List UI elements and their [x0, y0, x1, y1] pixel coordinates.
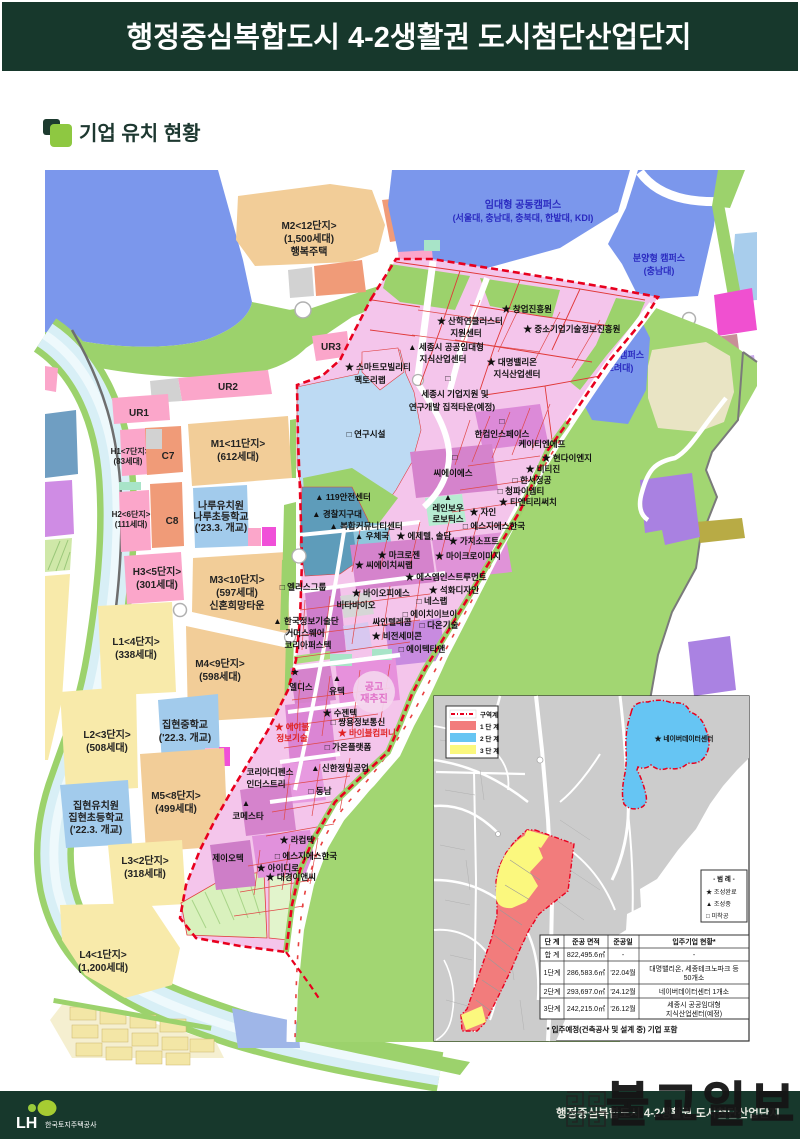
svg-text:★ 석화디자인: ★ 석화디자인 [429, 585, 479, 595]
svg-text:(508세대): (508세대) [86, 741, 128, 754]
svg-text:제이오텍: 제이오텍 [212, 853, 243, 863]
svg-text:케이티엔에프: 케이티엔에프 [519, 439, 566, 449]
svg-text:★ 창업진흥원: ★ 창업진흥원 [502, 304, 552, 314]
svg-text:행정중심복합도시 4-2생활권 도시첨단산업단지: 행정중심복합도시 4-2생활권 도시첨단산업단지 [127, 21, 692, 54]
svg-text:H1<7단지>: H1<7단지> [111, 446, 150, 456]
svg-text:50개소: 50개소 [684, 973, 705, 982]
svg-text:(301세대): (301세대) [136, 578, 178, 591]
svg-text:□ 에스지에스한국: □ 에스지에스한국 [275, 851, 337, 861]
svg-text:재추진: 재추진 [360, 692, 388, 705]
svg-text:세종시 공공임대형: 세종시 공공임대형 [667, 1000, 720, 1009]
svg-text:기업 유치 현황: 기업 유치 현황 [79, 122, 201, 145]
svg-text:(499세대): (499세대) [155, 802, 197, 815]
svg-text:▲: ▲ [444, 492, 452, 502]
svg-text:L2<3단지>: L2<3단지> [83, 728, 130, 741]
svg-text:□: □ [452, 452, 457, 462]
svg-text:거머스웨어: 거머스웨어 [285, 628, 324, 638]
svg-text:M4<9단지>: M4<9단지> [195, 657, 245, 670]
svg-text:★ 에스엠인스트루먼트: ★ 에스엠인스트루먼트 [405, 572, 486, 582]
svg-text:★ 비전세미콘: ★ 비전세미콘 [372, 631, 422, 641]
svg-text:L3<2단지>: L3<2단지> [121, 854, 168, 867]
svg-text:'22.04월: '22.04월 [610, 968, 635, 977]
svg-text:▲ 조성중: ▲ 조성중 [706, 900, 731, 908]
svg-text:□ 엘리스그룹: □ 엘리스그룹 [280, 582, 327, 592]
svg-text:□ 다온기술: □ 다온기술 [420, 620, 459, 630]
svg-text:★ 대명밸리온: ★ 대명밸리온 [487, 357, 537, 367]
svg-text:★ 바이오피에스: ★ 바이오피에스 [352, 588, 410, 598]
svg-text:집현유치원: 집현유치원 [73, 799, 119, 812]
svg-text:1단계: 1단계 [544, 968, 561, 977]
svg-text:(318세대): (318세대) [124, 867, 166, 880]
svg-text:□ 동남: □ 동남 [308, 786, 331, 796]
svg-text:▲ 신한정밀공업: ▲ 신한정밀공업 [311, 763, 369, 773]
svg-text:코메스타: 코메스타 [232, 811, 263, 821]
svg-text:★ 산학연클러스터: ★ 산학연클러스터 [437, 316, 503, 326]
svg-text:집현중학교: 집현중학교 [162, 718, 208, 731]
svg-text:행복주택: 행복주택 [291, 245, 328, 258]
svg-text:나루초등학교: 나루초등학교 [193, 510, 248, 523]
svg-text:네이버데이터센터 1개소: 네이버데이터센터 1개소 [659, 987, 730, 996]
svg-text:M5<8단지>: M5<8단지> [151, 789, 201, 802]
svg-text:(612세대): (612세대) [217, 450, 259, 463]
svg-text:유텍: 유텍 [329, 686, 345, 696]
svg-text:H2<6단지>: H2<6단지> [112, 509, 151, 519]
svg-text:L1<4단지>: L1<4단지> [112, 635, 159, 648]
svg-text:LH: LH [16, 1115, 37, 1132]
svg-text:▲ 한국정보기술단: ▲ 한국정보기술단 [273, 616, 339, 626]
svg-text:지원센터: 지원센터 [450, 328, 481, 338]
svg-text:1 단 계: 1 단 계 [480, 722, 499, 731]
svg-text:242,215.0㎡: 242,215.0㎡ [567, 1005, 605, 1013]
svg-text:□ 네스랩: □ 네스랩 [417, 596, 448, 606]
svg-text:3단계: 3단계 [544, 1004, 561, 1013]
svg-text:(서울대, 충남대, 충북대, 한밭대, KDI): (서울대, 충남대, 충북대, 한밭대, KDI) [453, 212, 594, 223]
svg-text:레인보우: 레인보우 [432, 503, 463, 513]
svg-text:286,583.6㎡: 286,583.6㎡ [567, 969, 605, 977]
svg-text:집현초등학교: 집현초등학교 [68, 811, 123, 824]
svg-text:★ 비티진: ★ 비티진 [526, 464, 561, 474]
svg-text:▲ 경찰지구대: ▲ 경찰지구대 [312, 509, 362, 519]
svg-text:불교일보: 불교일보 [606, 1078, 799, 1131]
svg-text:준공일: 준공일 [613, 937, 632, 946]
svg-text:('23.3. 개교): ('23.3. 개교) [195, 521, 247, 534]
svg-text:▲ 세종시 공공임대형: ▲ 세종시 공공임대형 [408, 342, 484, 352]
svg-text:□: □ [499, 416, 504, 426]
svg-text:▲: ▲ [333, 673, 341, 683]
svg-text:★ 씨에이치씨랩: ★ 씨에이치씨랩 [355, 560, 413, 570]
svg-text:세종시 기업지원 및: 세종시 기업지원 및 [421, 389, 488, 399]
svg-text:인더스트리: 인더스트리 [246, 779, 285, 789]
svg-text:★ 조성완료: ★ 조성완료 [706, 888, 737, 896]
svg-text:▲ 119안전센터: ▲ 119안전센터 [315, 492, 371, 502]
svg-text:▲: ▲ [242, 798, 250, 808]
svg-text:M1<11단지>: M1<11단지> [211, 437, 266, 450]
svg-text:씨에이에스: 씨에이에스 [433, 468, 472, 478]
svg-text:★ 자인: ★ 자인 [470, 507, 497, 517]
svg-text:822,495.6㎡: 822,495.6㎡ [567, 951, 605, 959]
svg-text:대명밸리온, 세종테크노파크 등: 대명밸리온, 세종테크노파크 등 [649, 964, 739, 973]
svg-text:★ 라컴텍: ★ 라컴텍 [280, 835, 315, 845]
svg-text:(598세대): (598세대) [199, 670, 241, 683]
svg-text:준공 면적: 준공 면적 [572, 937, 600, 946]
svg-text:C7: C7 [162, 451, 175, 462]
svg-text:싸인텔레콤: 싸인텔레콤 [372, 617, 411, 627]
svg-text:H3<5단지>: H3<5단지> [133, 565, 182, 578]
svg-text:지식산업센터(예정): 지식산업센터(예정) [666, 1009, 722, 1018]
svg-text:UR3: UR3 [321, 342, 341, 353]
svg-text:코리아퍼스텍: 코리아퍼스텍 [285, 640, 332, 650]
svg-text:('22.3. 개교): ('22.3. 개교) [70, 823, 122, 836]
svg-text:293,697.0㎡: 293,697.0㎡ [567, 988, 605, 996]
svg-text:(83세대): (83세대) [114, 456, 143, 466]
svg-text:엘디스: 엘디스 [289, 682, 313, 692]
svg-text:★ 대경이앤씨: ★ 대경이앤씨 [266, 872, 316, 882]
svg-text:한국토지주택공사: 한국토지주택공사 [45, 1120, 97, 1129]
svg-text:★ 가치소프트: ★ 가치소프트 [449, 536, 499, 546]
svg-text:'24.12월: '24.12월 [610, 987, 635, 996]
svg-text:★ 마크로젠: ★ 마크로젠 [378, 550, 420, 560]
svg-text:□ 에이텍타앤: □ 에이텍타앤 [399, 644, 446, 654]
svg-text:* 입주예정(건축공사 및 설계 중) 기업 포함: * 입주예정(건축공사 및 설계 중) 기업 포함 [547, 1024, 678, 1034]
svg-text:연구개발 집적타운(예정): 연구개발 집적타운(예정) [409, 402, 495, 412]
svg-text:▲ 복합커뮤니티센터: ▲ 복합커뮤니티센터 [329, 521, 402, 531]
svg-text:★ 바이블컴퍼니: ★ 바이블컴퍼니 [338, 728, 396, 738]
svg-text:(111세대): (111세대) [115, 519, 148, 529]
svg-text:□ 쌍용정보통신: □ 쌍용정보통신 [331, 717, 386, 727]
svg-text:- 범 례 -: - 범 례 - [713, 874, 735, 883]
svg-text:L4<1단지>: L4<1단지> [79, 948, 126, 961]
svg-text:신혼희망타운: 신혼희망타운 [209, 599, 264, 612]
svg-text:지식산업센터: 지식산업센터 [420, 354, 467, 364]
svg-text:★ 마이크로이미지: ★ 마이크로이미지 [435, 551, 501, 561]
svg-text:단 계: 단 계 [545, 937, 560, 946]
svg-text:분양형 캠퍼스: 분양형 캠퍼스 [633, 252, 686, 263]
svg-text:정보기술: 정보기술 [276, 733, 307, 743]
svg-text:C8: C8 [166, 516, 179, 527]
svg-text:나루유치원: 나루유치원 [198, 499, 244, 512]
svg-text:('22.3. 개교): ('22.3. 개교) [159, 731, 211, 744]
svg-text:2 단 계: 2 단 계 [480, 734, 499, 743]
svg-text:▲ 우체국: ▲ 우체국 [355, 531, 389, 541]
svg-text:합 계: 합 계 [545, 950, 560, 959]
svg-text:□ 연구시설: □ 연구시설 [347, 429, 386, 439]
svg-text:(1,200세대): (1,200세대) [78, 961, 128, 974]
svg-text:★ 네이버데이터센터: ★ 네이버데이터센터 [655, 734, 714, 743]
svg-text:□ 에스지에스한국: □ 에스지에스한국 [463, 521, 525, 531]
svg-text:□ 한서정공: □ 한서정공 [513, 475, 552, 485]
svg-text:(338세대): (338세대) [115, 648, 157, 661]
svg-text:★ 에이블: ★ 에이블 [275, 722, 310, 732]
svg-text:비타바이오: 비타바이오 [336, 600, 375, 610]
svg-text:★ 중소기업기술정보진흥원: ★ 중소기업기술정보진흥원 [524, 324, 621, 334]
svg-text:지식산업센터: 지식산업센터 [494, 369, 541, 379]
svg-text:팩토리랩: 팩토리랩 [354, 375, 385, 385]
svg-text:한컴인스페이스: 한컴인스페이스 [475, 429, 530, 439]
svg-text:로보틱스: 로보틱스 [432, 514, 463, 524]
svg-text:코리아디펜스: 코리아디펜스 [247, 767, 294, 777]
svg-text:UR1: UR1 [129, 408, 149, 419]
svg-text:M2<12단지>: M2<12단지> [281, 219, 336, 232]
svg-text:□ 청파이엠티: □ 청파이엠티 [498, 486, 545, 496]
svg-text:UR2: UR2 [218, 382, 238, 393]
svg-text:입주기업 현황*: 입주기업 현황* [672, 937, 716, 946]
svg-text:'26.12월: '26.12월 [610, 1004, 635, 1013]
svg-text:□ 미착공: □ 미착공 [706, 912, 729, 920]
svg-text:★ 에제텔, 솔담: ★ 에제텔, 솔담 [397, 531, 452, 541]
svg-text:공고: 공고 [365, 681, 383, 693]
svg-text:임대형 공동캠퍼스: 임대형 공동캠퍼스 [485, 198, 561, 211]
svg-text:(충남대): (충남대) [644, 265, 675, 276]
svg-text:M3<10단지>: M3<10단지> [209, 573, 264, 586]
svg-text:★ 스마트모빌리티: ★ 스마트모빌리티 [345, 362, 411, 372]
svg-text:3 단 계: 3 단 계 [480, 746, 499, 755]
svg-text:□: □ [445, 373, 450, 383]
svg-text:구역계: 구역계 [480, 710, 498, 719]
svg-text:★ 티엔티리써치: ★ 티엔티리써치 [499, 497, 557, 507]
svg-text:□ 가온플랫폼: □ 가온플랫폼 [325, 742, 372, 752]
svg-text:(597세대): (597세대) [216, 586, 258, 599]
svg-text:(1,500세대): (1,500세대) [284, 232, 334, 245]
svg-text:★ 현다이엔지: ★ 현다이엔지 [542, 453, 592, 463]
svg-text:2단계: 2단계 [544, 987, 561, 996]
